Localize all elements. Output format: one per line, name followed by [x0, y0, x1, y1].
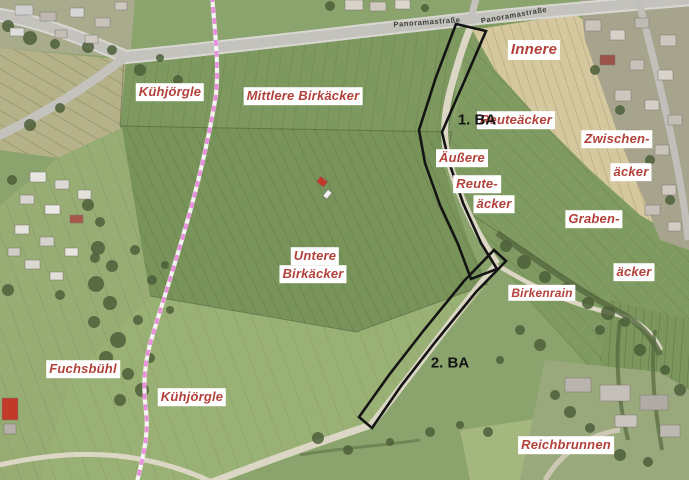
field-label-reute-aecker: äcker [474, 195, 515, 213]
field-label-graben-aecker: äcker [614, 263, 655, 281]
construction-label-ba1: 1. BA [458, 112, 496, 129]
field-label-aeussere: Äußere [436, 149, 488, 167]
field-label-kuehjoergle-sued: Kühjörgle [158, 388, 226, 406]
field-label-reute: Reute- [453, 175, 501, 193]
map-canvas [0, 0, 689, 480]
field-label-reichbrunnen: Reichbrunnen [518, 436, 614, 454]
field-label-untere: Untere [291, 247, 339, 265]
field-label-zwischen: Zwischen- [581, 130, 652, 148]
field-label-zwischen-aecker: äcker [611, 163, 652, 181]
field-label-untere-birkaecker: Birkäcker [279, 265, 346, 283]
field-label-innere: Innere [508, 40, 560, 60]
field-label-mittlere-birkaecker: Mittlere Birkäcker [244, 87, 363, 105]
field-label-graben: Graben- [565, 210, 622, 228]
red-roof-building [2, 398, 18, 420]
field-label-kuehjoergle-nord: Kühjörgle [136, 83, 204, 101]
field-label-birkenrain: Birkenrain [508, 285, 575, 301]
construction-label-ba2: 2. BA [431, 355, 469, 372]
aerial-map: Panoramastraße Panoramastraße Kühjörgle … [0, 0, 689, 480]
field-label-fuchsbuehl: Fuchsbühl [46, 360, 120, 378]
